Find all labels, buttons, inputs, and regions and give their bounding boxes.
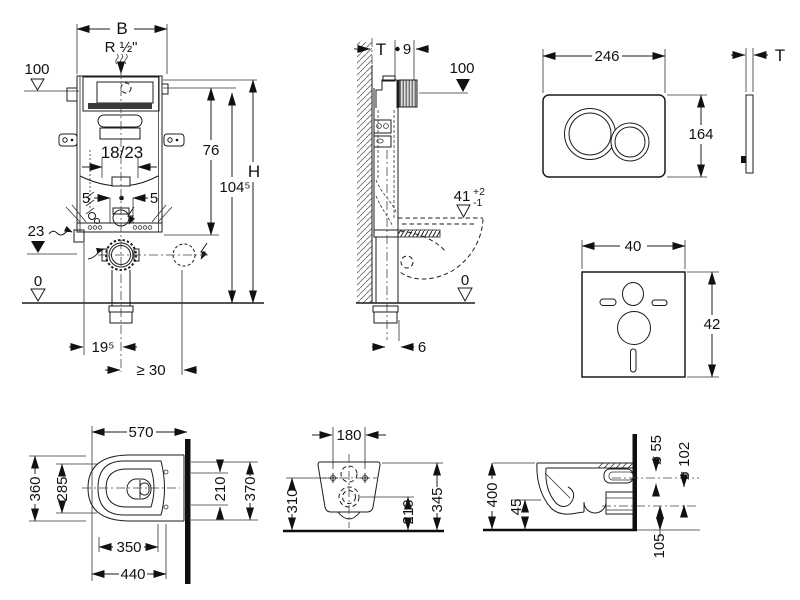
dim-label-6: 6: [418, 339, 426, 356]
wall-bracket-left: [59, 134, 77, 146]
dim-label-dia-102: ø 102: [676, 442, 693, 480]
wall-section: [633, 434, 638, 530]
dim-label-T-wall: T: [376, 40, 386, 59]
dim-label-310: 310: [284, 488, 301, 513]
dim-label-tol-minus: -1: [473, 197, 482, 209]
wall-bracket-right: [164, 134, 184, 146]
large-flush-button: [565, 109, 616, 160]
dim-label-41: 41: [454, 188, 471, 205]
dim-label-45: 45: [508, 499, 525, 516]
dim-label-440: 440: [120, 566, 145, 583]
dim-label-400: 400: [484, 482, 501, 507]
datum-label-100: 100: [449, 60, 474, 77]
dim-label-164: 164: [688, 126, 713, 143]
dim-label-76: 76: [203, 142, 220, 159]
dim-label-570: 570: [128, 424, 153, 441]
technical-drawing-page: B R ½" 100 18/23: [0, 0, 800, 600]
dim-label-5-right: 5: [150, 190, 158, 207]
cistern-side-view-diagram: T 9 100 41 +2 -1: [354, 38, 485, 356]
dim-label-40: 40: [625, 238, 642, 255]
dim-label-246: 246: [594, 48, 619, 65]
small-flush-button: [611, 123, 649, 161]
flush-plate-diagram: 246 164 T: [543, 46, 785, 177]
wc-side-view-diagram: 400 45 ø 55 ø 102 105: [483, 434, 700, 559]
wc-top-view-diagram: 570 360 285 350 440 210: [27, 424, 259, 584]
dim-label-5-left: 5: [82, 190, 90, 207]
dim-label-360: 360: [27, 476, 44, 501]
dim-label-105: 105: [651, 533, 668, 558]
dim-label-210-top: 210: [212, 476, 229, 501]
dim-label-350: 350: [116, 539, 141, 556]
flexible-connection-squiggle-icon: [49, 231, 104, 259]
datum-label-0: 0: [34, 273, 42, 290]
datum-triangle-open: [31, 79, 44, 90]
dim-label-210-rear: 210: [400, 499, 417, 524]
datum-triangle-filled: [31, 241, 45, 253]
dim-label-B: B: [116, 19, 127, 38]
dim-label-104-5: 104⁵: [219, 179, 250, 196]
dim-label-9: 9: [403, 41, 411, 58]
dim-label-180: 180: [336, 427, 361, 444]
wc-rear-view-diagram: 180 310 210 345: [283, 427, 446, 531]
cistern-front-view-diagram: B R ½" 100 18/23: [22, 19, 264, 379]
dim-label-18-23: 18/23: [101, 143, 144, 162]
flush-plate-edge-view: [746, 95, 753, 173]
dim-label-supply-thread: R ½": [105, 39, 138, 56]
dim-label-H: H: [248, 162, 260, 181]
datum-label-0: 0: [461, 272, 469, 289]
lightning-bolt-icon: [201, 243, 207, 259]
datum-label-100: 100: [24, 61, 49, 78]
dim-label-dia-55: ø 55: [648, 435, 665, 465]
dim-label-345: 345: [429, 487, 446, 512]
wall-section: [185, 439, 191, 584]
technical-drawing-canvas: B R ½" 100 18/23: [0, 0, 800, 600]
datum-label-23: 23: [28, 223, 45, 240]
dim-label-min-30: ≥ 30: [136, 362, 165, 379]
sound-insulation-pad-diagram: 40 42: [582, 238, 720, 377]
dim-label-T-plate: T: [775, 46, 785, 65]
dim-label-285: 285: [54, 476, 71, 501]
sound-pad-outline: [582, 272, 685, 377]
dim-label-42: 42: [704, 316, 721, 333]
dim-label-19-5: 19⁵: [92, 339, 115, 356]
dim-label-370: 370: [242, 476, 259, 501]
